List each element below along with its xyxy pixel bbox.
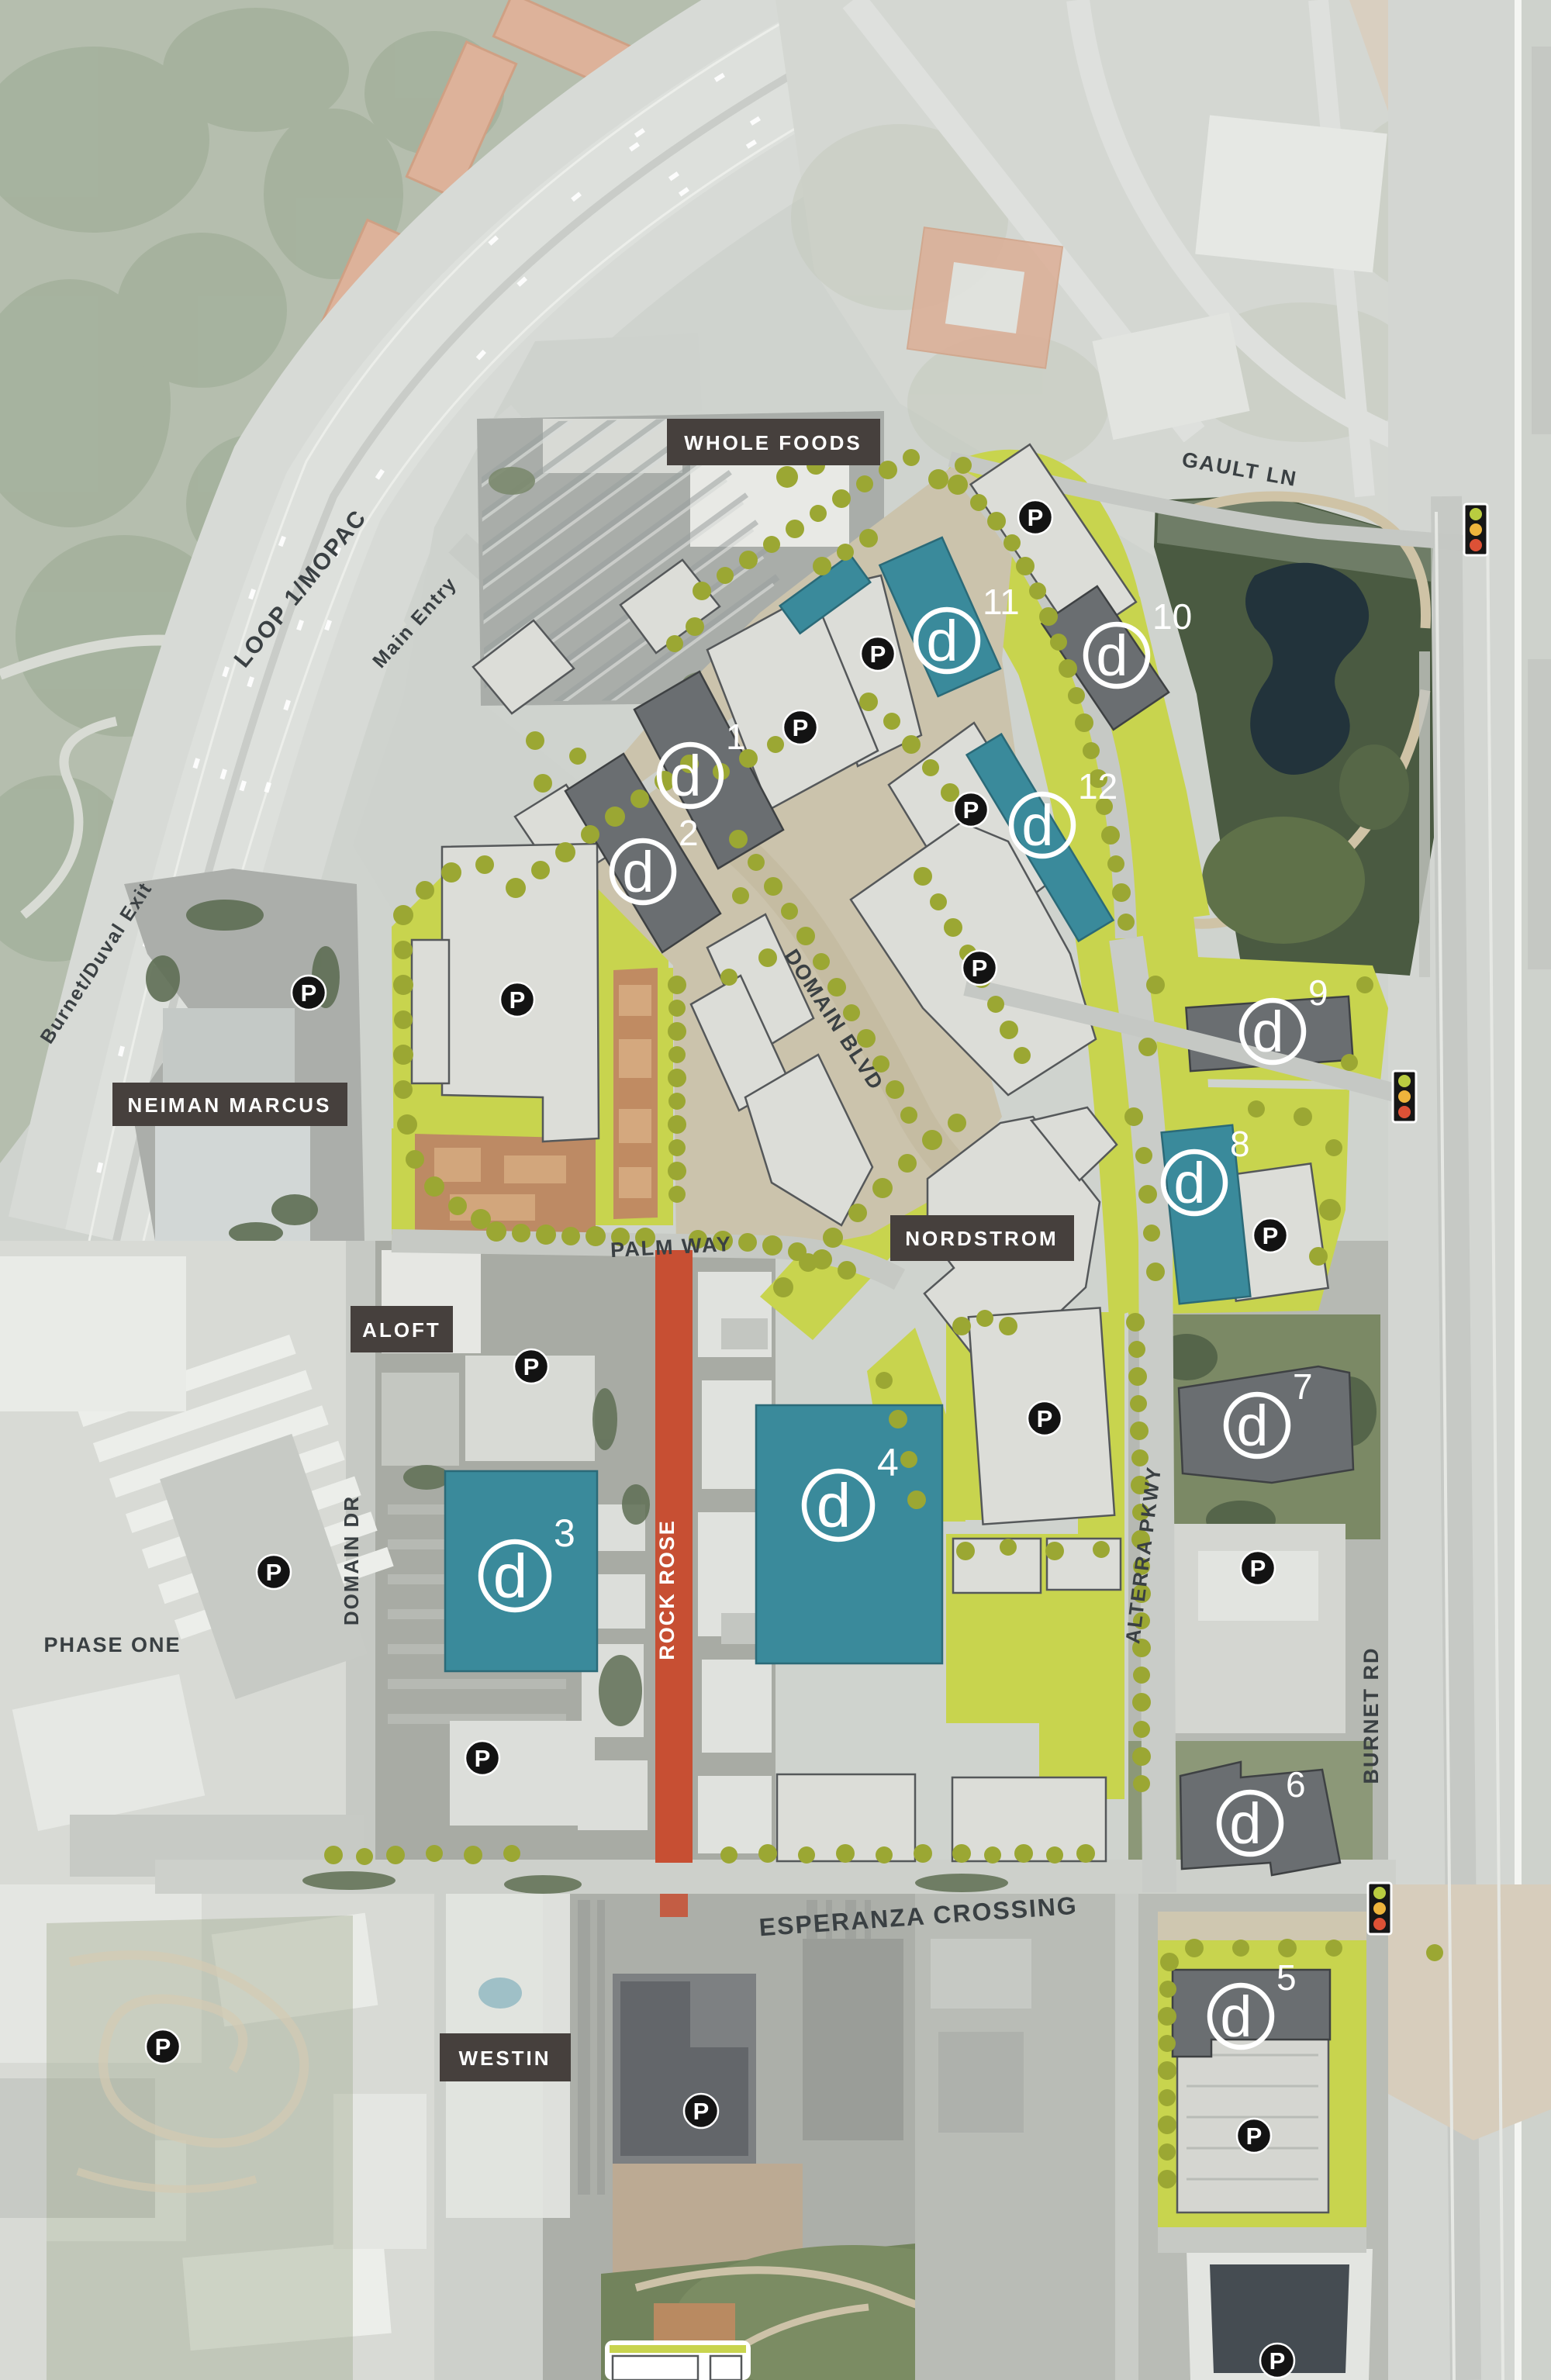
svg-text:d: d [622, 840, 654, 904]
svg-text:12: 12 [1078, 766, 1117, 807]
svg-text:d: d [1229, 1791, 1261, 1856]
svg-text:P: P [972, 955, 988, 982]
svg-text:PHASE ONE: PHASE ONE [43, 1633, 181, 1656]
svg-text:9: 9 [1308, 972, 1328, 1013]
svg-text:NEIMAN MARCUS: NEIMAN MARCUS [128, 1093, 332, 1117]
svg-text:d: d [926, 609, 958, 673]
svg-text:P: P [870, 641, 886, 668]
svg-text:3: 3 [554, 1511, 575, 1555]
svg-text:P: P [1028, 504, 1044, 531]
svg-text:P: P [155, 2033, 171, 2060]
svg-text:P: P [1263, 1222, 1279, 1249]
svg-text:7: 7 [1293, 1366, 1313, 1407]
svg-text:P: P [793, 714, 809, 741]
svg-text:WHOLE FOODS: WHOLE FOODS [684, 431, 862, 454]
svg-text:d: d [493, 1542, 528, 1611]
svg-text:d: d [1173, 1151, 1205, 1215]
svg-text:P: P [1246, 2123, 1263, 2150]
svg-text:NORDSTROM: NORDSTROM [905, 1227, 1058, 1250]
svg-text:P: P [510, 986, 526, 1014]
svg-text:5: 5 [1276, 1957, 1297, 1998]
svg-text:11: 11 [983, 582, 1020, 622]
svg-text:ALOFT: ALOFT [362, 1318, 441, 1342]
svg-text:WESTIN: WESTIN [458, 2047, 551, 2070]
svg-text:P: P [475, 1745, 491, 1772]
svg-text:P: P [1250, 1555, 1266, 1582]
svg-text:6: 6 [1286, 1764, 1306, 1805]
svg-text:P: P [1269, 2347, 1286, 2375]
svg-text:BURNET RD: BURNET RD [1359, 1647, 1383, 1784]
svg-text:DOMAIN DR: DOMAIN DR [340, 1495, 363, 1625]
svg-text:4: 4 [877, 1441, 899, 1484]
svg-text:P: P [693, 2098, 710, 2125]
svg-text:ROCK ROSE: ROCK ROSE [655, 1519, 679, 1660]
svg-text:2: 2 [679, 813, 699, 853]
svg-text:d: d [1096, 623, 1128, 688]
svg-text:d: d [1021, 793, 1053, 858]
svg-text:1: 1 [726, 717, 746, 757]
svg-text:P: P [523, 1353, 540, 1380]
svg-text:d: d [1220, 1984, 1252, 2049]
svg-text:8: 8 [1230, 1124, 1250, 1164]
svg-text:P: P [266, 1559, 282, 1586]
svg-text:P: P [1037, 1405, 1053, 1432]
svg-text:P: P [301, 979, 317, 1007]
svg-text:d: d [669, 744, 701, 808]
svg-text:d: d [1252, 1000, 1283, 1064]
svg-text:P: P [963, 796, 979, 824]
svg-text:d: d [1236, 1394, 1268, 1458]
svg-text:d: d [817, 1471, 851, 1540]
svg-text:10: 10 [1152, 596, 1192, 637]
